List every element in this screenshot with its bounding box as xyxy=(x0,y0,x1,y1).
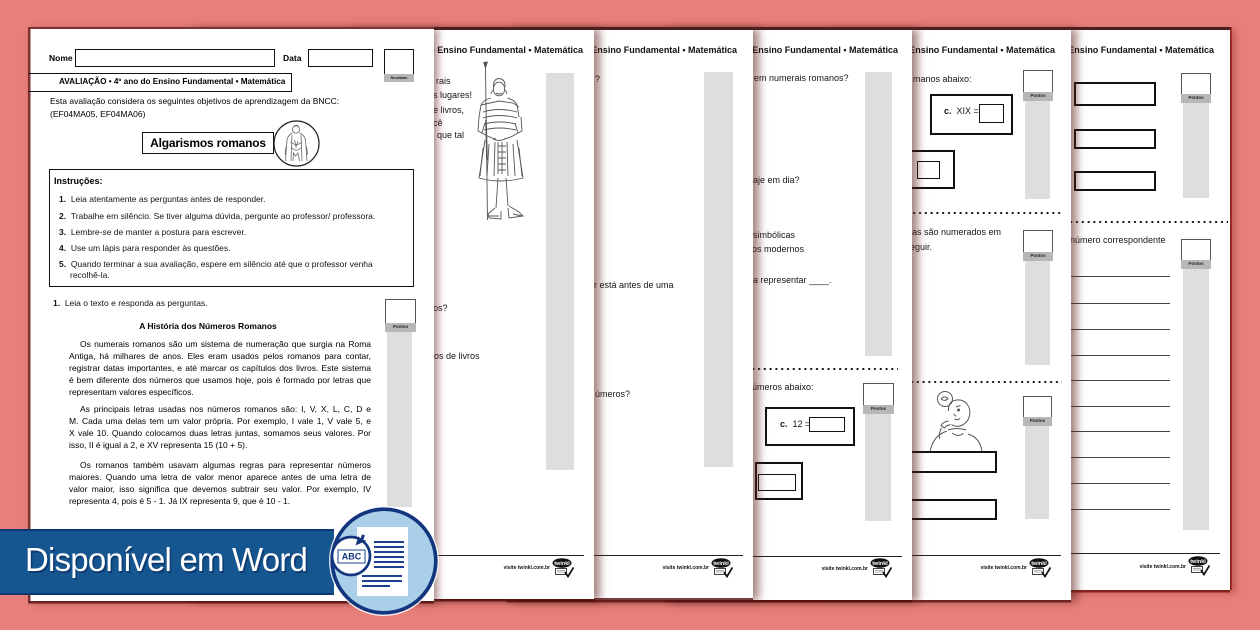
svg-text:twinkl: twinkl xyxy=(554,561,570,567)
svg-text:twinkl: twinkl xyxy=(1190,559,1206,565)
svg-text:ABC: ABC xyxy=(342,552,362,562)
svg-text:twinkl: twinkl xyxy=(713,561,729,567)
svg-text:twinkl: twinkl xyxy=(1031,561,1047,567)
svg-text:twinkl: twinkl xyxy=(872,561,888,567)
